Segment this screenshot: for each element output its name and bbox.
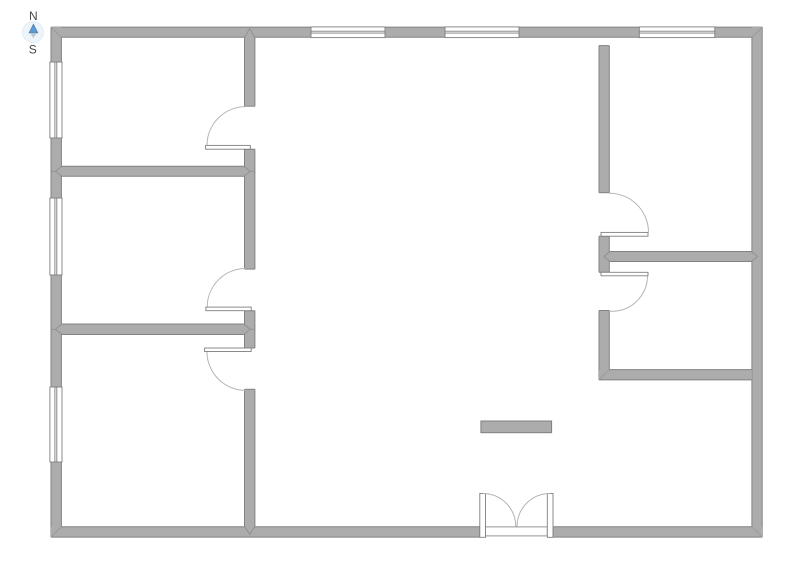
svg-text:N: N bbox=[29, 9, 38, 23]
svg-text:S: S bbox=[29, 43, 37, 57]
